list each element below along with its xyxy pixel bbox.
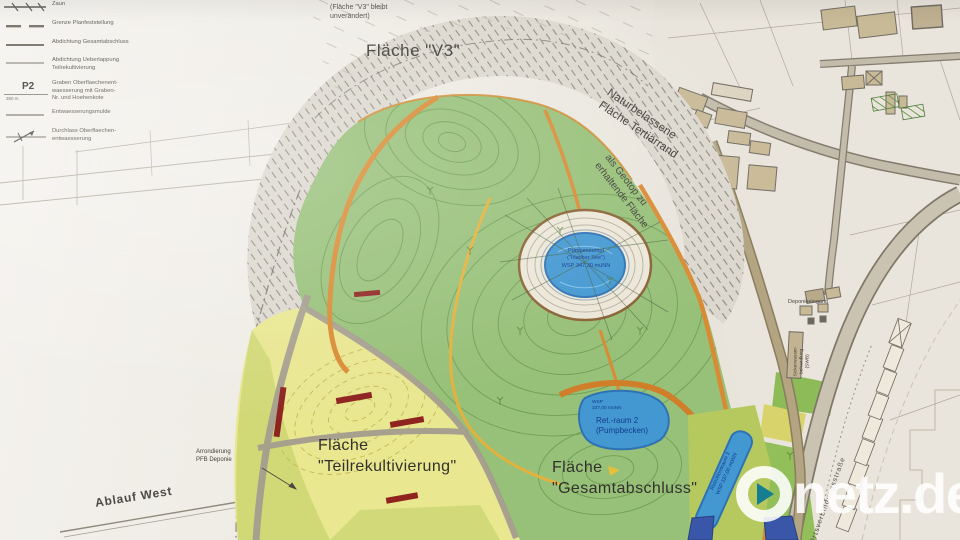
legend-label: Graben Oberflaechenent- waesserung mit G… [52,80,118,103]
overlap-line-symbol-icon [4,58,52,68]
graben-symbol-icon: P2 350 m [4,81,52,103]
legend-label: Grenze Planfeststellung [52,20,114,28]
legend-item-graben: P2 350 m Graben Oberflaechenent- waesser… [4,80,199,103]
legend-label: Abdichtung Gesamtabschluss [52,39,129,47]
legend-item-durchlass: Durchlass Oberflaechen- entwaesserung [4,128,199,143]
legend-label: Zaun [52,1,65,9]
legend-item-mulde: Entwaesserungsmulde [4,109,199,120]
play-triangle-icon [757,483,774,505]
legend-item-grenze: Grenze Planfeststellung [4,20,199,31]
arrondierung-label: Arrondierung PFB Deponie [196,449,232,465]
pumpensumpf-label: Pumpensumpf ("Irlacher See") WSP 347,30 … [545,248,627,270]
fence-line-symbol-icon [4,2,52,12]
legend-label: Durchlass Oberflaechen- entwaesserung [52,128,116,143]
legend-item-zaun: Zaun [4,1,199,12]
sealing-line-symbol-icon [4,40,52,50]
onetz-watermark: netz.de [736,466,960,522]
retraum2-wsp-label: WSP 337,00 müNN [592,400,622,412]
deponieeingang-label: Deponieeingang [788,299,828,306]
map-legend: Zaun Grenze Planfeststellung Abdichtung … [4,1,199,143]
retraum2-label: Ret.-raum 2 (Pumpbecken) [596,416,648,437]
culvert-symbol-icon [4,129,52,143]
sickerwasser-label: Sickerwasser- behandlung (SWB) [794,336,813,386]
gesamtabschluss-label: Fläche "Gesamtabschluss" [552,458,697,500]
photographed-site-plan: Zaun Grenze Planfeststellung Abdichtung … [0,0,960,540]
graben-elevation-label: 350 m [6,96,19,101]
legend-label: Abdichtung Ueberlappung Teilrekultivieru… [52,57,119,72]
legend-item-abdichtung-gesamt: Abdichtung Gesamtabschluss [4,39,199,50]
onetz-watermark-text: netz.de [793,466,960,522]
onetz-logo-o-icon [736,466,792,522]
legend-item-abdichtung-ueberlappung: Abdichtung Ueberlappung Teilrekultivieru… [4,57,199,72]
v3-note-label: (Fläche "V3" bleibt unverändert) [330,3,388,21]
crossed-box-building [866,71,882,85]
graben-number-label: P2 [22,81,34,92]
teilrekultivierung-label: Fläche "Teilrekultivierung" [318,436,457,478]
legend-label: Entwaesserungsmulde [52,109,111,117]
drainage-swale-symbol-icon [4,110,52,120]
v3-title-label: Fläche "V3" [366,40,460,62]
boundary-dash-symbol-icon [4,21,52,31]
